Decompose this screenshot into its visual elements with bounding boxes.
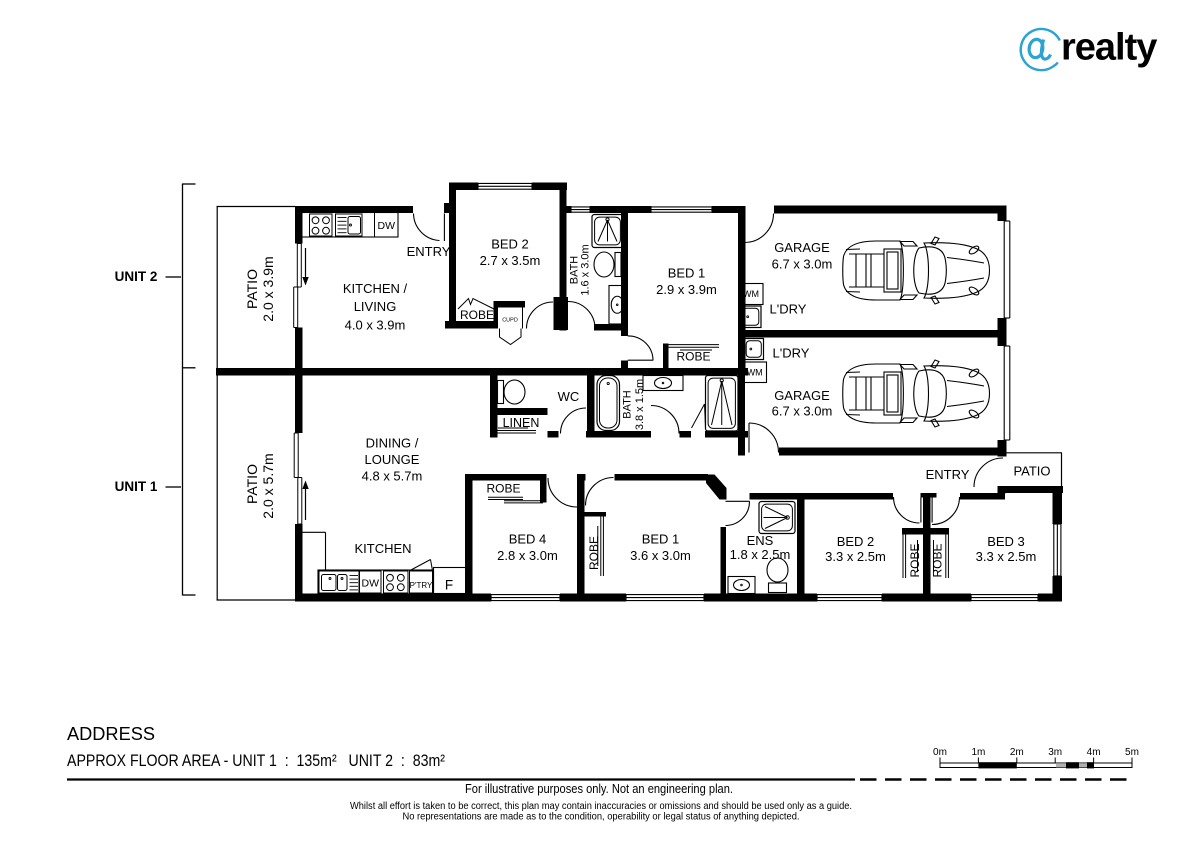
svg-text:KITCHEN /: KITCHEN / <box>343 281 408 296</box>
svg-text:CUPD: CUPD <box>502 318 518 324</box>
svg-text:BED 3: BED 3 <box>987 534 1025 549</box>
svg-text:3.6 x 3.0m: 3.6 x 3.0m <box>630 548 691 563</box>
svg-text:3.3 x 2.5m: 3.3 x 2.5m <box>976 549 1037 564</box>
svg-text:realty: realty <box>1061 27 1157 69</box>
svg-text:PATIO: PATIO <box>1013 464 1050 479</box>
svg-text:3m: 3m <box>1048 747 1062 758</box>
svg-text:GARAGE: GARAGE <box>774 388 830 403</box>
svg-text:BED 2: BED 2 <box>491 237 529 252</box>
svg-text:ENTRY: ENTRY <box>926 467 970 482</box>
svg-text:LIVING: LIVING <box>354 299 397 314</box>
svg-text:PATIO: PATIO <box>244 464 260 504</box>
svg-text:BED 4: BED 4 <box>509 532 547 547</box>
svg-text:2.9 x 3.9m: 2.9 x 3.9m <box>656 282 717 297</box>
svg-text:6.7 x 3.0m: 6.7 x 3.0m <box>772 257 833 272</box>
svg-text:2.0 x 5.7m: 2.0 x 5.7m <box>260 453 276 518</box>
svg-text:L'DRY: L'DRY <box>773 346 810 361</box>
svg-text:2.8 x 3.0m: 2.8 x 3.0m <box>497 548 558 563</box>
svg-text:ENTRY: ENTRY <box>407 244 451 259</box>
svg-text:4m: 4m <box>1087 747 1101 758</box>
svg-text:Whilst all effort is taken to: Whilst all effort is taken to be correct… <box>350 801 852 812</box>
svg-text:WM: WM <box>747 368 763 378</box>
svg-text:BED 1: BED 1 <box>668 266 706 281</box>
svg-text:4.0 x 3.9m: 4.0 x 3.9m <box>345 318 406 333</box>
svg-text:LOUNGE: LOUNGE <box>365 452 420 467</box>
svg-text:P'TRY: P'TRY <box>410 581 433 590</box>
svg-text:ROBE: ROBE <box>676 350 710 364</box>
svg-text:6.7 x 3.0m: 6.7 x 3.0m <box>772 404 833 419</box>
svg-text:DINING /: DINING / <box>366 436 419 451</box>
svg-text:4.8 x 5.7m: 4.8 x 5.7m <box>362 469 423 484</box>
svg-text:ROBE: ROBE <box>587 536 601 570</box>
svg-text:L'DRY: L'DRY <box>770 302 807 317</box>
svg-text:LINEN: LINEN <box>503 416 540 430</box>
svg-text:DW: DW <box>362 578 380 590</box>
svg-text:2m: 2m <box>1010 747 1024 758</box>
svg-text:UNIT 2: UNIT 2 <box>115 269 158 284</box>
svg-text:2.0 x 3.9m: 2.0 x 3.9m <box>260 256 276 321</box>
svg-text:ENS: ENS <box>747 533 774 548</box>
svg-text:0m: 0m <box>933 747 947 758</box>
svg-text:5m: 5m <box>1125 747 1139 758</box>
svg-text:ROBE: ROBE <box>460 308 494 322</box>
svg-text:WM: WM <box>743 289 759 299</box>
svg-text:BED 1: BED 1 <box>642 532 680 547</box>
svg-text:ROBE: ROBE <box>486 482 520 496</box>
svg-text:ROBE: ROBE <box>908 543 922 577</box>
svg-text:1.6 x 3.0m: 1.6 x 3.0m <box>580 244 592 295</box>
svg-text:3.8 x 1.5m: 3.8 x 1.5m <box>634 379 646 430</box>
svg-text:WC: WC <box>558 389 580 404</box>
svg-text:APPROX FLOOR AREA - UNIT 1 :: APPROX FLOOR AREA - UNIT 1 : 135m² UNIT … <box>67 752 445 770</box>
svg-text:ADDRESS: ADDRESS <box>67 724 155 744</box>
svg-text:PATIO: PATIO <box>244 269 260 309</box>
svg-text:ROBE: ROBE <box>931 543 945 577</box>
svg-text:For illustrative purposes only: For illustrative purposes only. Not an e… <box>465 781 733 796</box>
svg-text:F: F <box>445 578 453 593</box>
svg-text:2.7 x 3.5m: 2.7 x 3.5m <box>480 253 541 268</box>
svg-text:BED 2: BED 2 <box>837 534 875 549</box>
svg-text:1m: 1m <box>971 747 985 758</box>
svg-text:KITCHEN: KITCHEN <box>354 541 411 556</box>
svg-text:BATH: BATH <box>622 390 634 419</box>
svg-text:3.3 x 2.5m: 3.3 x 2.5m <box>825 549 886 564</box>
svg-text:DW: DW <box>378 220 396 232</box>
svg-text:GARAGE: GARAGE <box>774 240 830 255</box>
svg-text:No representations are made as: No representations are made as to the co… <box>403 812 800 823</box>
svg-text:UNIT 1: UNIT 1 <box>115 479 158 494</box>
svg-text:1.8 x 2.5m: 1.8 x 2.5m <box>730 547 791 562</box>
